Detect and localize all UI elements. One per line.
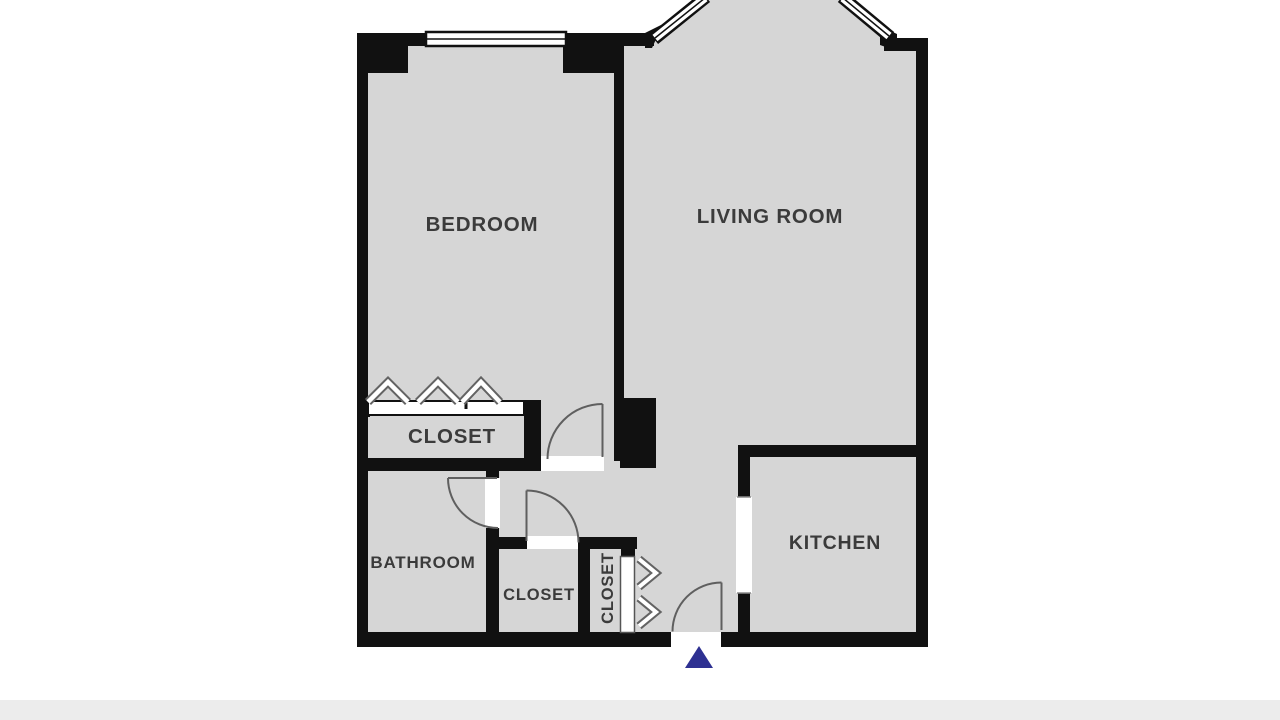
room-label-kitchen: KITCHEN xyxy=(789,532,881,554)
wall-top-living-right xyxy=(884,38,928,51)
wall-kitchen-left-upper xyxy=(738,445,750,497)
wall-kitchen-top xyxy=(738,445,928,457)
wall-top-bedroom-left xyxy=(357,33,429,46)
room-label-bathroom: BATHROOM xyxy=(370,553,475,572)
room-label-bedroom: BEDROOM xyxy=(426,213,539,236)
wall-hall-horizontal xyxy=(357,458,541,471)
wall-bottom-right xyxy=(721,632,928,647)
floorplan-drawing: BEDROOM LIVING ROOM CLOSET BATHROOM CLOS… xyxy=(0,0,1280,720)
wall-left-outer xyxy=(357,33,368,647)
wall-closet-right xyxy=(524,400,541,461)
wall-right-outer xyxy=(916,38,928,647)
wall-entry-closet-stub xyxy=(621,537,635,558)
wall-bedroom-living-divider xyxy=(614,33,624,461)
bathroom-door-opening xyxy=(485,478,500,528)
entrance-arrow-triangle-icon xyxy=(685,646,713,668)
room-label-entry-closet: CLOSET xyxy=(599,552,617,624)
footer-bar xyxy=(0,700,1280,720)
wall-column xyxy=(620,398,656,468)
wall-bottom-left xyxy=(357,632,671,647)
kitchen-opening xyxy=(736,497,752,593)
wall-bathroom-stub xyxy=(486,471,499,478)
floorplan-page: BEDROOM LIVING ROOM CLOSET BATHROOM CLOS… xyxy=(0,0,1280,720)
entry-door-opening xyxy=(671,632,721,647)
wall-hall-closet-top-left xyxy=(486,537,527,549)
wall-closet-divider xyxy=(578,537,590,632)
room-label-living-room: LIVING ROOM xyxy=(697,205,844,228)
room-label-bedroom-closet: CLOSET xyxy=(408,425,496,448)
entry-closet-sliding-door-icon xyxy=(621,557,635,633)
bedroom-door-opening xyxy=(541,456,604,471)
room-label-hallway-closet: CLOSET xyxy=(503,586,575,604)
bedroom-closet-sliding-door-icon xyxy=(368,401,524,415)
wall-kitchen-left-lower xyxy=(738,593,750,647)
bedroom-window-icon xyxy=(426,32,566,46)
hallway-closet-door-opening xyxy=(527,536,578,549)
